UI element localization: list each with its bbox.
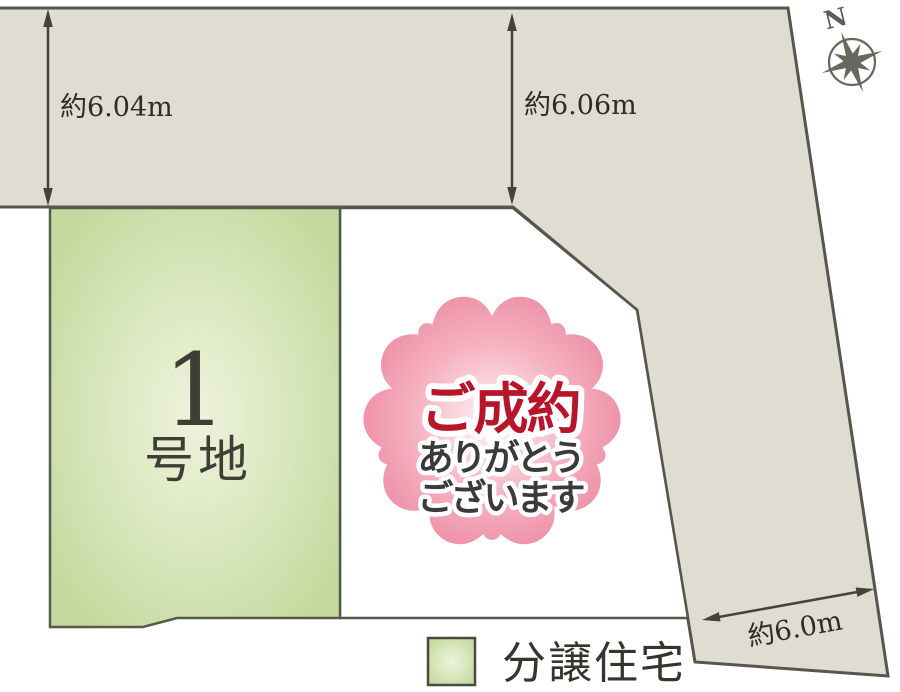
compass-icon [811,21,893,103]
legend: 分譲住宅 [428,638,686,689]
legend-swatch-green [428,638,475,685]
dimension-label-left: 約6.04m [60,92,173,123]
sold-thanks-line1: ありがとう [417,437,582,479]
compass-n-label: N [821,2,850,36]
dimension-label-middle: 約6.06m [524,90,637,121]
sold-title: ご成約 [420,376,579,441]
lot-1-suffix: 号地 [144,431,252,489]
sold-thanks-line2: ございます [417,477,584,519]
site-plan-page: 約6.04m 約6.06m 約6.0m N 1 号地 [0,0,900,692]
legend-label: 分譲住宅 [502,638,686,689]
lot-layout-map: 約6.04m 約6.06m 約6.0m N 1 号地 [0,0,900,692]
